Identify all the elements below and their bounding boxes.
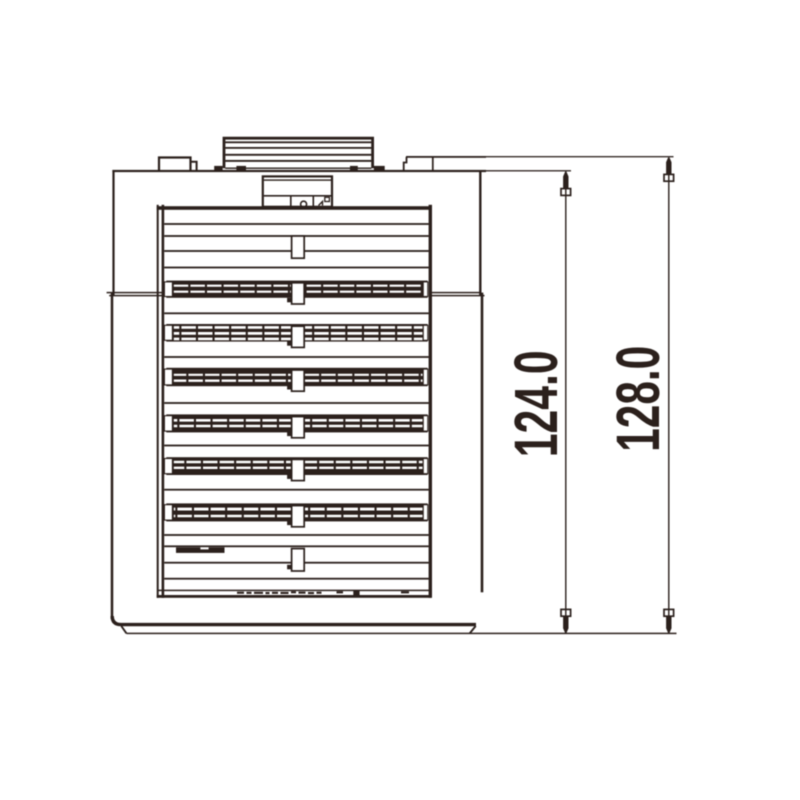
svg-text:124.0: 124.0	[502, 350, 570, 457]
svg-text:128.0: 128.0	[604, 346, 672, 452]
